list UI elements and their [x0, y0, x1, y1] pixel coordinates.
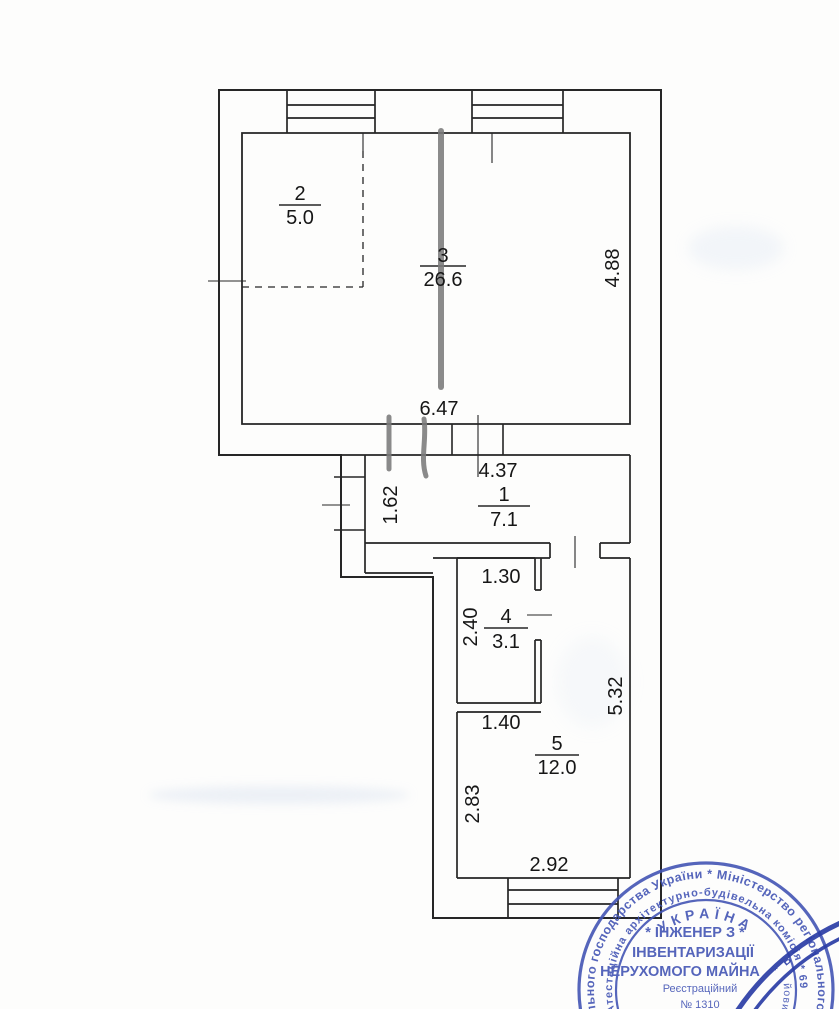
stamp-title-line3: НЕРУХОМОГО МАЙНА	[600, 962, 760, 980]
dim-room4-height: 2.40	[460, 608, 482, 647]
top-windows	[287, 90, 563, 133]
stamp-name-fragment-right: йович	[777, 983, 793, 1009]
room-2-area: 5.0	[286, 207, 314, 229]
inventory-engineer-stamp: комунального господарства України * Міні…	[579, 863, 833, 1009]
room-5-area: 12.0	[538, 757, 577, 779]
bottom-window	[508, 878, 618, 918]
left-window-ticks	[334, 477, 365, 530]
dim-hall-width: 4.37	[479, 460, 518, 482]
room-3-number: 3	[437, 245, 448, 267]
room-1-number: 1	[498, 484, 509, 506]
stamp-title-line2: ІНВЕНТАРИЗАЦІЇ	[632, 944, 755, 961]
dim-right-strip-height: 5.32	[605, 677, 627, 716]
dim-hall-height: 1.62	[380, 486, 402, 525]
stamp-reg-number: № 1310	[680, 999, 719, 1009]
room-2-number: 2	[294, 183, 305, 205]
room-1-area: 7.1	[490, 509, 518, 531]
room-4-number: 4	[500, 606, 511, 628]
dim-main-room-width: 6.47	[420, 398, 459, 420]
dim-main-room-height: 4.88	[602, 249, 624, 288]
floor-plan-drawing: 2 5.0 3 26.6 1 7.1 4 3.1 5 12.0 6.47 4.3…	[0, 0, 839, 1009]
dim-room5-bottom-width: 2.92	[530, 854, 569, 876]
room-5-number: 5	[551, 733, 562, 755]
dim-room5-left-height: 2.83	[462, 785, 484, 824]
stamp-reg-label: Реєстраційний	[663, 983, 738, 995]
stamp-title-line1: * ІНЖЕНЕР З *	[645, 925, 745, 941]
marker-line-short-2	[423, 419, 426, 476]
scanned-floor-plan-page: 2 5.0 3 26.6 1 7.1 4 3.1 5 12.0 6.47 4.3…	[0, 0, 839, 1009]
hall-walls	[219, 455, 630, 878]
walls	[208, 90, 661, 918]
room-3-area: 26.6	[424, 269, 463, 291]
room-4-area: 3.1	[492, 631, 520, 653]
dim-room4-width: 1.30	[482, 566, 521, 588]
dim-room5-top-width: 1.40	[482, 712, 521, 734]
